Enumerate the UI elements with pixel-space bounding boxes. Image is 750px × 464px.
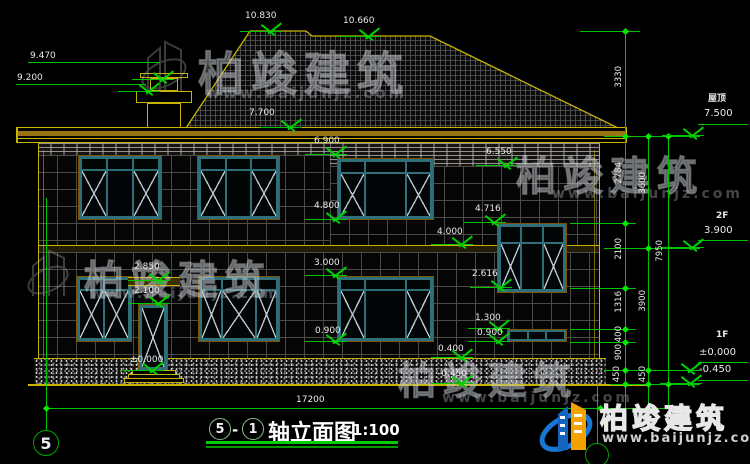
elev-label: 6.900 (314, 136, 340, 146)
level-marker (118, 79, 160, 96)
dim-tick (644, 244, 651, 251)
total-width-dim: 17200 (296, 395, 325, 405)
title-axis-end: 1 (248, 422, 257, 437)
leader-line (28, 62, 160, 63)
window-pane (364, 291, 405, 338)
dim-tick (621, 366, 628, 373)
door-step-3 (124, 378, 184, 383)
vdim-label: 1316 (614, 291, 624, 313)
level-marker (662, 123, 704, 140)
title-underline-thick (206, 441, 398, 444)
window-2f-3 (337, 158, 434, 220)
window-2f-2 (197, 155, 280, 220)
window-2f-1 (78, 155, 162, 220)
window-pane (225, 171, 251, 216)
company-logo-icon (538, 394, 598, 464)
elev-label: 7.700 (249, 108, 275, 118)
leader-line (16, 84, 146, 85)
f2-label: 2F (716, 211, 728, 221)
window-pane (364, 280, 405, 289)
elev-label: 2.616 (472, 269, 498, 279)
axis-bubble-5-label: 5 (40, 434, 51, 453)
elev-label: 3.000 (314, 258, 340, 268)
vdim-label: 3600 (638, 172, 648, 194)
window-pane (405, 280, 430, 289)
elev-label: 0.900 (315, 326, 341, 336)
level-marker (338, 24, 380, 41)
vdim-label: 2100 (614, 238, 624, 260)
elev-label: 2.100 (134, 286, 160, 296)
drawing-scale: 1:100 (352, 421, 400, 439)
window-pane (510, 332, 527, 339)
window-pane (225, 159, 251, 169)
elev-label: 6.550 (486, 147, 512, 157)
window-pane (542, 244, 563, 289)
window-pane (82, 159, 106, 169)
elev-label: 2.850 (134, 262, 160, 272)
dim-tick (621, 380, 628, 387)
company-logo-url: www.baijunjz.com (602, 431, 750, 446)
title-axis-start: 5 (215, 422, 224, 437)
axis-line-5 (46, 198, 47, 431)
elevation-drawing-canvas: 柏竣建筑 www.baijunjz.com 柏竣建筑 www.baijunjz.… (0, 0, 750, 464)
vdim-label: 400 (614, 326, 624, 342)
dim-tick (621, 219, 628, 226)
level-marker (240, 19, 282, 36)
window-pane (132, 171, 158, 216)
vdim-label: 3330 (614, 66, 624, 88)
elev-label: 0.400 (438, 344, 464, 354)
window-pane (405, 174, 430, 216)
elev-label: ±0.000 (130, 355, 163, 365)
vdim-label: 900 (614, 344, 624, 360)
watermark-logo-left (24, 246, 74, 306)
chimney-body (147, 103, 181, 129)
f1-label: 1F (716, 330, 728, 340)
elev-label: 9.470 (30, 51, 56, 61)
window-pane (542, 227, 563, 242)
window-pane (201, 171, 225, 216)
window-pane (405, 162, 430, 172)
title-underline-thin (206, 446, 398, 448)
elev-label: 4.800 (314, 201, 340, 211)
window-pane (545, 332, 564, 339)
window-pane (250, 171, 276, 216)
title-separator: - (232, 421, 238, 439)
window-1f-small (507, 329, 567, 342)
elev-label: 4.716 (475, 204, 501, 214)
elev-label: 9.200 (17, 73, 43, 83)
window-pane (201, 159, 225, 169)
window-pane (364, 174, 405, 216)
window-pane (106, 159, 132, 169)
roof-label: 屋顶 (708, 94, 726, 104)
f1-minus-level: -0.450 (699, 365, 731, 375)
window-pane (405, 291, 430, 338)
level-underline (698, 362, 748, 363)
title-axis-start-bubble: 5 (209, 418, 231, 440)
elev-label: 1.300 (475, 313, 501, 323)
elev-label: 4.000 (437, 227, 463, 237)
window-pane (364, 162, 405, 172)
vdim-label: 3900 (638, 290, 648, 312)
dim-tick (42, 404, 49, 411)
window-pane (520, 244, 541, 289)
window-pane (106, 171, 132, 216)
window-1f-3 (337, 276, 434, 342)
window-pane (250, 159, 276, 169)
window-pane (341, 162, 364, 172)
window-pane (132, 159, 158, 169)
title-axis-end-bubble: 1 (242, 418, 264, 440)
window-pane (520, 227, 541, 242)
level-underline (698, 124, 748, 125)
axis-bubble-5: 5 (33, 430, 59, 456)
window-pane (501, 227, 520, 242)
level-marker (660, 371, 702, 388)
roof-level: 7.500 (704, 109, 733, 119)
window-pane (341, 280, 364, 289)
level-underline (698, 240, 748, 241)
elev-label: 10.830 (245, 11, 277, 21)
window-pane (527, 332, 546, 339)
level-marker (662, 235, 704, 252)
f2-level: 3.900 (704, 226, 733, 236)
watermark-url-left: www.baijunjz.com (90, 286, 281, 302)
elev-label: 0.900 (477, 328, 503, 338)
vdim-label: 450 (612, 366, 622, 382)
f1-zero-level: ±0.000 (699, 348, 736, 358)
level-underline (698, 380, 748, 381)
vdim-label: 2784 (614, 162, 624, 184)
elev-label: -0.450 (438, 369, 467, 379)
watermark-url-top: www.baijunjz.com (206, 84, 407, 102)
elev-label: 10.660 (343, 16, 375, 26)
vdim-label: 450 (638, 366, 648, 382)
window-pane (82, 171, 106, 216)
ext-line (580, 31, 640, 32)
